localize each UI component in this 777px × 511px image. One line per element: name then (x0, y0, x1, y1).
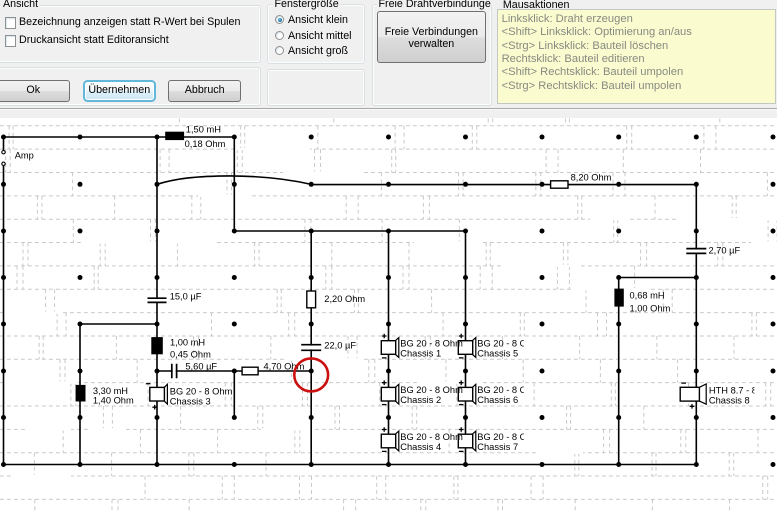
svg-text:BG 20 - 8 Ohm: BG 20 - 8 Ohm (400, 432, 463, 442)
svg-text:BG 20 - 8 Ohm: BG 20 - 8 Ohm (400, 338, 463, 348)
svg-text:Chassis 1: Chassis 1 (400, 348, 441, 358)
svg-text:0,45 Ohm: 0,45 Ohm (170, 350, 211, 360)
svg-text:1,40 Ohm: 1,40 Ohm (93, 396, 134, 406)
svg-text:Chassis 2: Chassis 2 (400, 395, 441, 405)
svg-text:BG 20 - 8 Ohm: BG 20 - 8 Ohm (400, 385, 463, 395)
svg-text:Chassis 5: Chassis 5 (477, 348, 518, 358)
svg-text:BG 20 - 8 Ohm: BG 20 - 8 Ohm (170, 386, 233, 396)
svg-text:0,68 mH: 0,68 mH (630, 291, 665, 301)
svg-text:Chassis 3: Chassis 3 (170, 396, 211, 406)
svg-text:BG 20 - 8 Ohm: BG 20 - 8 Ohm (477, 385, 540, 395)
svg-text:Chassis 8: Chassis 8 (709, 396, 750, 406)
svg-text:Chassis 6: Chassis 6 (477, 395, 518, 405)
svg-text:2,20 Ohm: 2,20 Ohm (324, 294, 365, 304)
svg-text:1,00 Ohm: 1,00 Ohm (630, 304, 671, 314)
svg-text:Amp: Amp (15, 150, 34, 160)
svg-text:BG 20 - 8 Ohm: BG 20 - 8 Ohm (477, 338, 540, 348)
svg-text:1,50 mH: 1,50 mH (186, 125, 221, 135)
svg-text:0,18 Ohm: 0,18 Ohm (185, 139, 226, 149)
svg-text:1,00 mH: 1,00 mH (170, 338, 205, 348)
svg-text:3,30 mH: 3,30 mH (93, 386, 128, 396)
svg-text:15,0 µF: 15,0 µF (170, 292, 202, 302)
svg-text:22,0 µF: 22,0 µF (324, 341, 356, 351)
svg-text:8,20 Ohm: 8,20 Ohm (571, 172, 612, 182)
svg-text:2,70 µF: 2,70 µF (709, 245, 741, 255)
svg-text:5,60 µF: 5,60 µF (185, 361, 217, 371)
svg-text:Chassis 7: Chassis 7 (477, 442, 518, 452)
svg-text:HTH 8.7 - 8 Ohm: HTH 8.7 - 8 Ohm (709, 386, 777, 396)
svg-text:BG 20 - 8 Ohm: BG 20 - 8 Ohm (477, 432, 540, 442)
svg-text:Chassis 4: Chassis 4 (400, 442, 441, 452)
